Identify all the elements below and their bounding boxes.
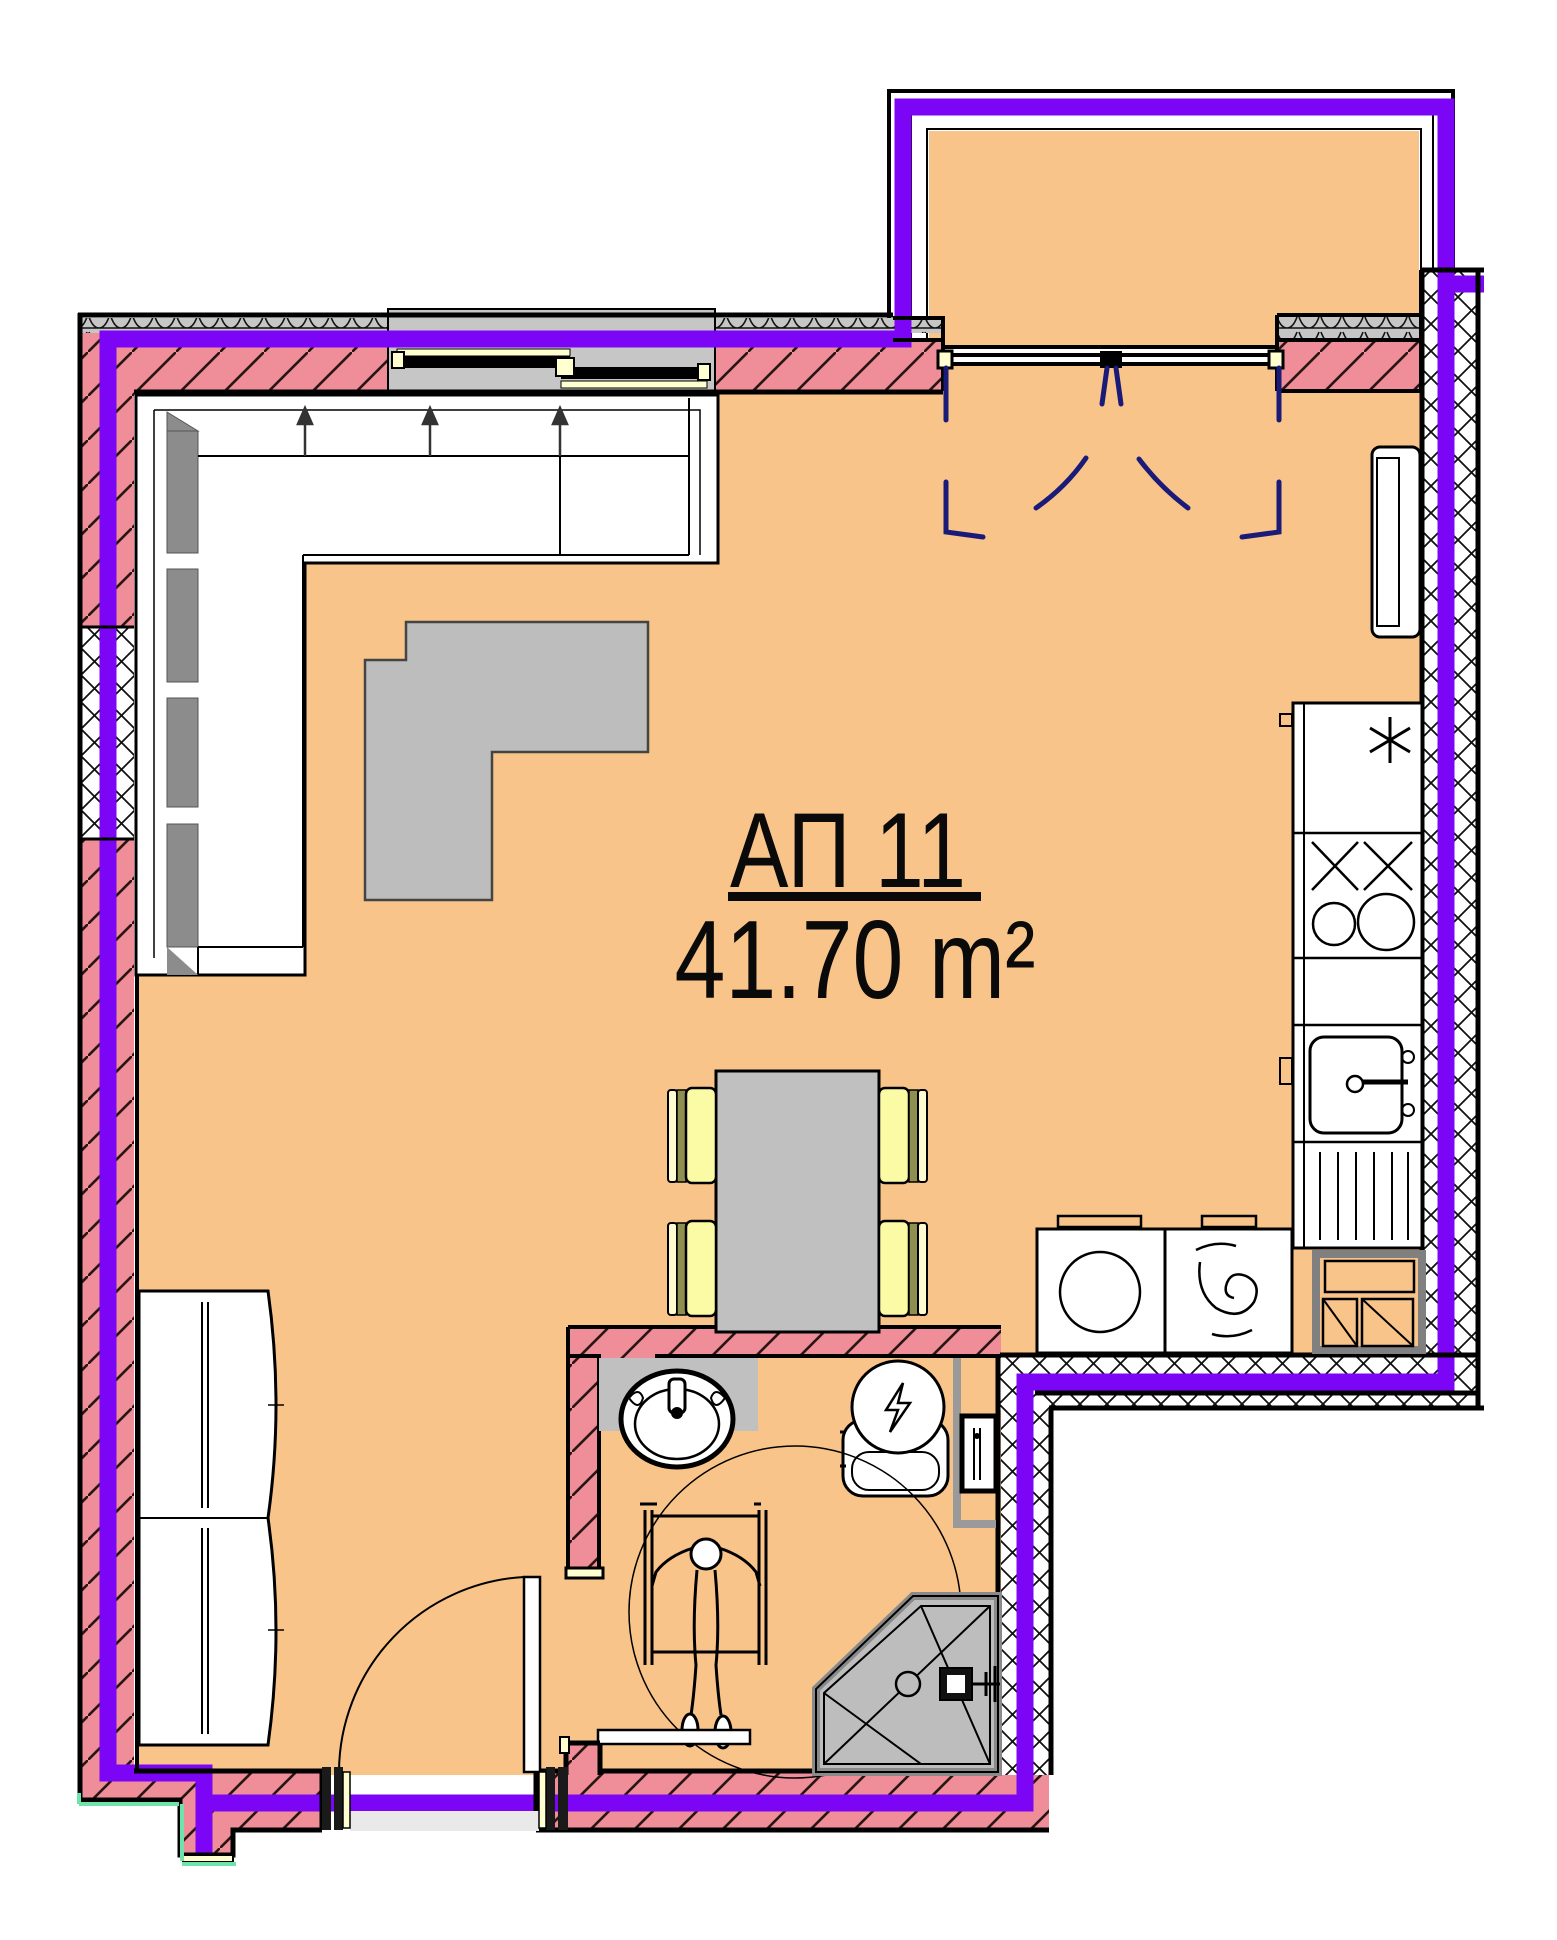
svg-text:41.70 m²: 41.70 m² [675, 898, 1036, 1022]
svg-text:АП 11: АП 11 [730, 790, 966, 910]
